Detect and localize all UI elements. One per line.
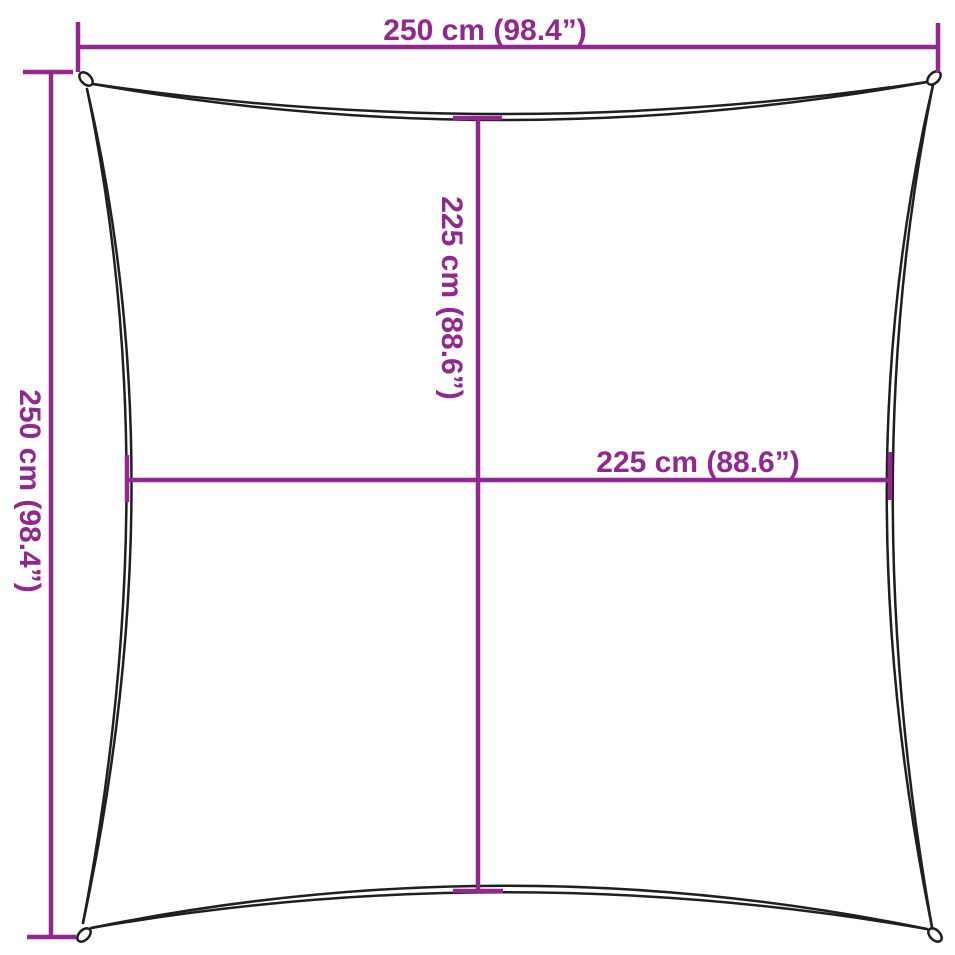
corner-ring-top-right xyxy=(925,69,943,87)
dimension-label-outer-width: 250 cm (98.4”) xyxy=(383,14,586,47)
dimension-label-inner-height: 225 cm (88.6”) xyxy=(435,196,468,399)
sail-left-edge-outer xyxy=(83,89,127,923)
dimension-label-outer-height: 250 cm (98.4”) xyxy=(13,389,46,592)
dimension-label-inner-width: 225 cm (88.6”) xyxy=(596,446,799,479)
dimension-lines xyxy=(23,22,938,937)
corner-ring-bottom-right xyxy=(926,926,944,944)
diagram-canvas: 250 cm (98.4”) 250 cm (98.4”) 225 cm (88… xyxy=(0,0,955,955)
sail-outline xyxy=(75,69,944,944)
sail-top-edge-outer xyxy=(93,82,927,114)
corner-ring-bottom-left xyxy=(75,926,93,944)
shade-sail-dimension-diagram: 250 cm (98.4”) 250 cm (98.4”) 225 cm (88… xyxy=(0,0,955,955)
corner-ring-top-left xyxy=(77,70,95,88)
sail-right-edge-outer xyxy=(893,85,933,927)
sail-bottom-edge-outer xyxy=(91,892,927,929)
